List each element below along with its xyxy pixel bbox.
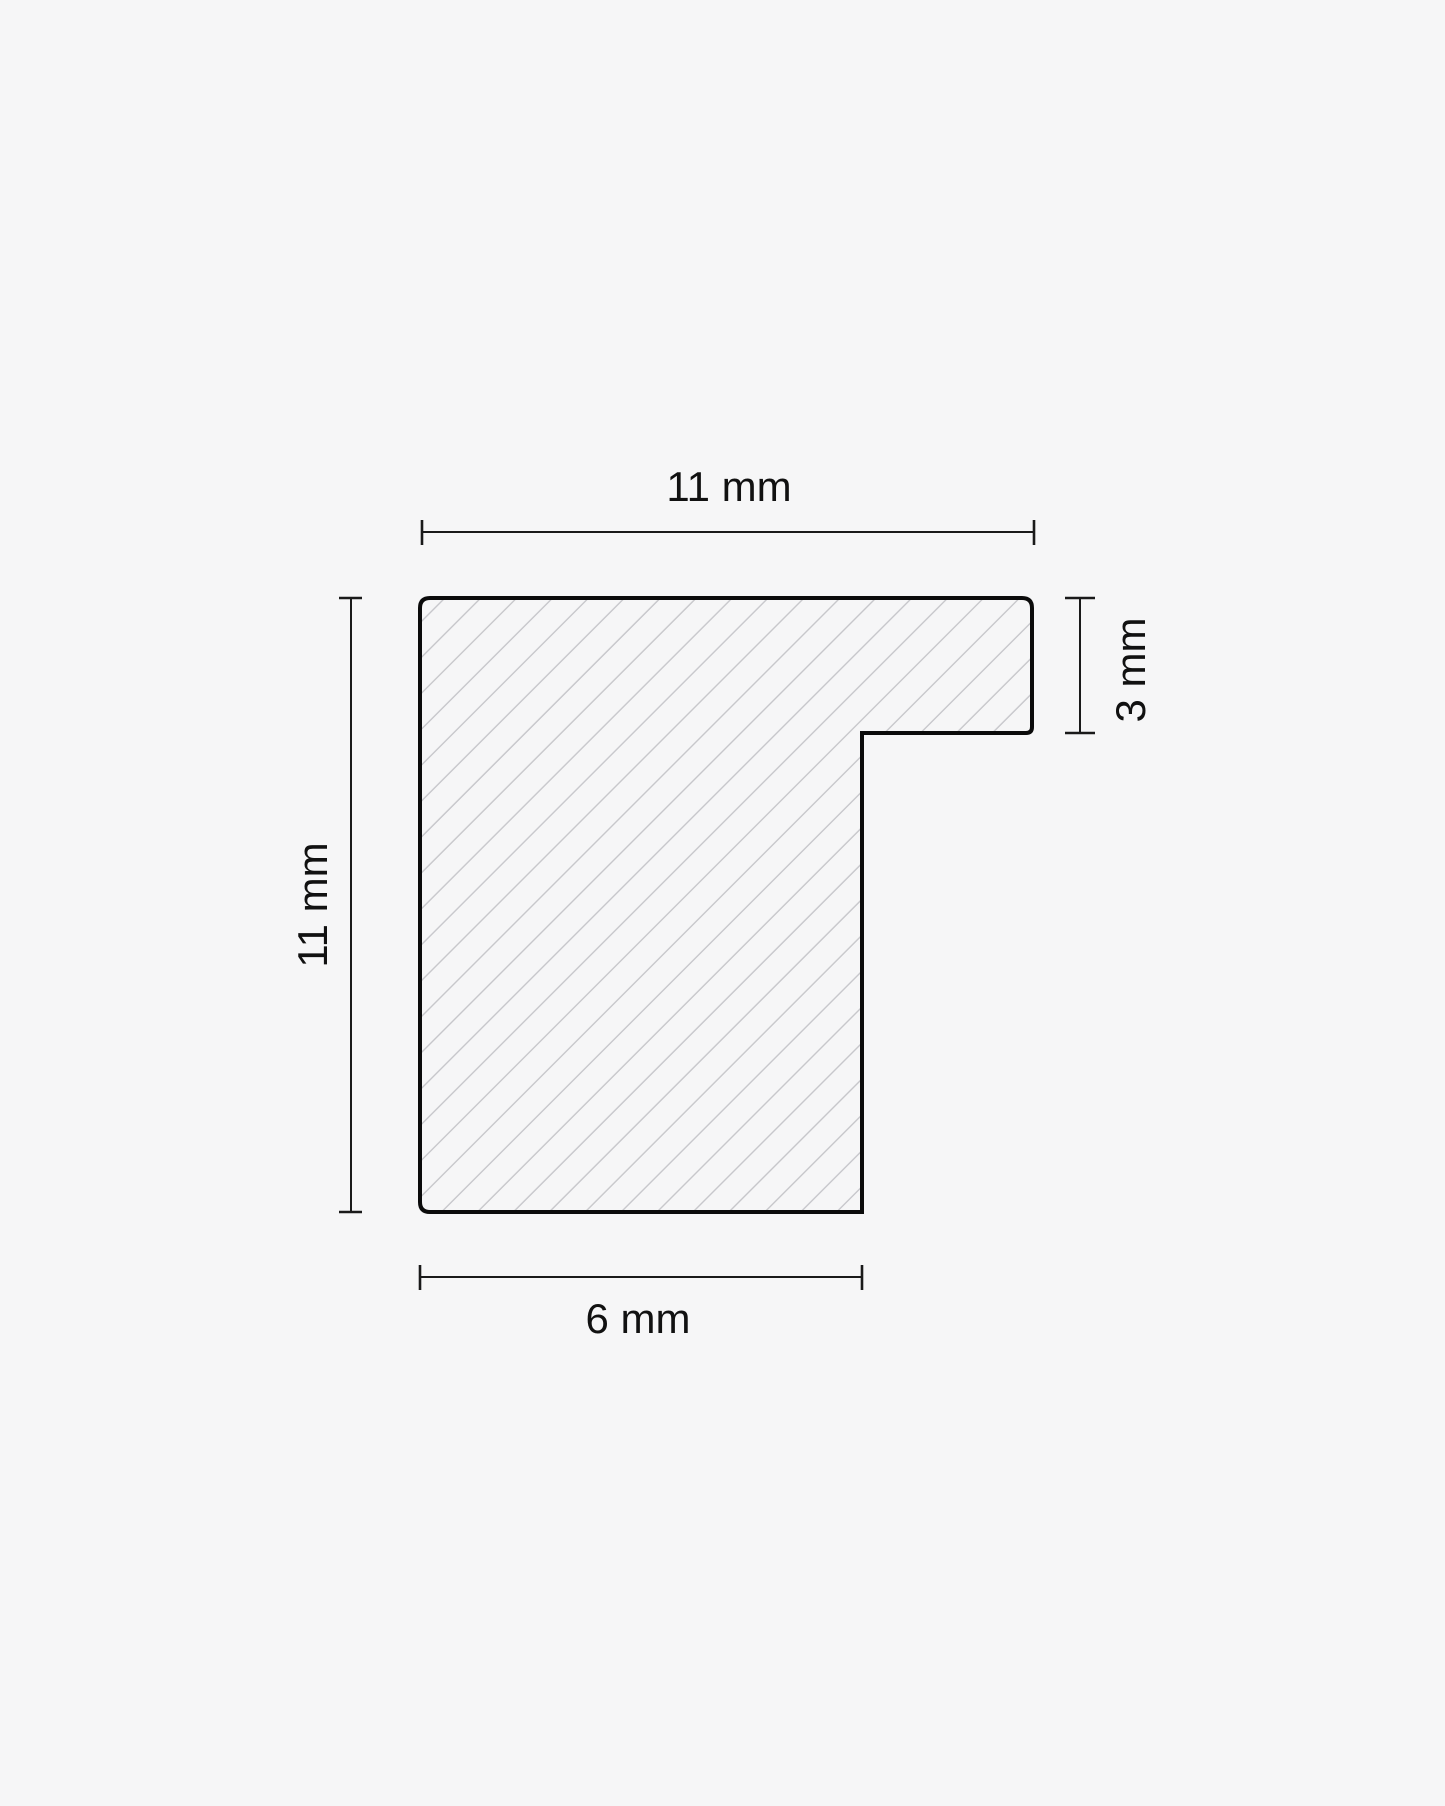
left-dimension: 11 mm [289, 598, 362, 1212]
left-dimension-label: 11 mm [289, 842, 336, 967]
bottom-dimension-label: 6 mm [586, 1295, 691, 1342]
diagram-canvas: 11 mm 11 mm 3 mm 6 mm [0, 0, 1445, 1806]
profile-outline [420, 598, 1032, 1212]
top-dimension-label: 11 mm [666, 463, 791, 510]
top-dimension: 11 mm [422, 463, 1034, 545]
right-dimension: 3 mm [1065, 598, 1154, 733]
bottom-dimension: 6 mm [420, 1265, 862, 1342]
right-dimension-label: 3 mm [1107, 618, 1154, 723]
profile-cross-section-diagram: 11 mm 11 mm 3 mm 6 mm [0, 0, 1445, 1806]
